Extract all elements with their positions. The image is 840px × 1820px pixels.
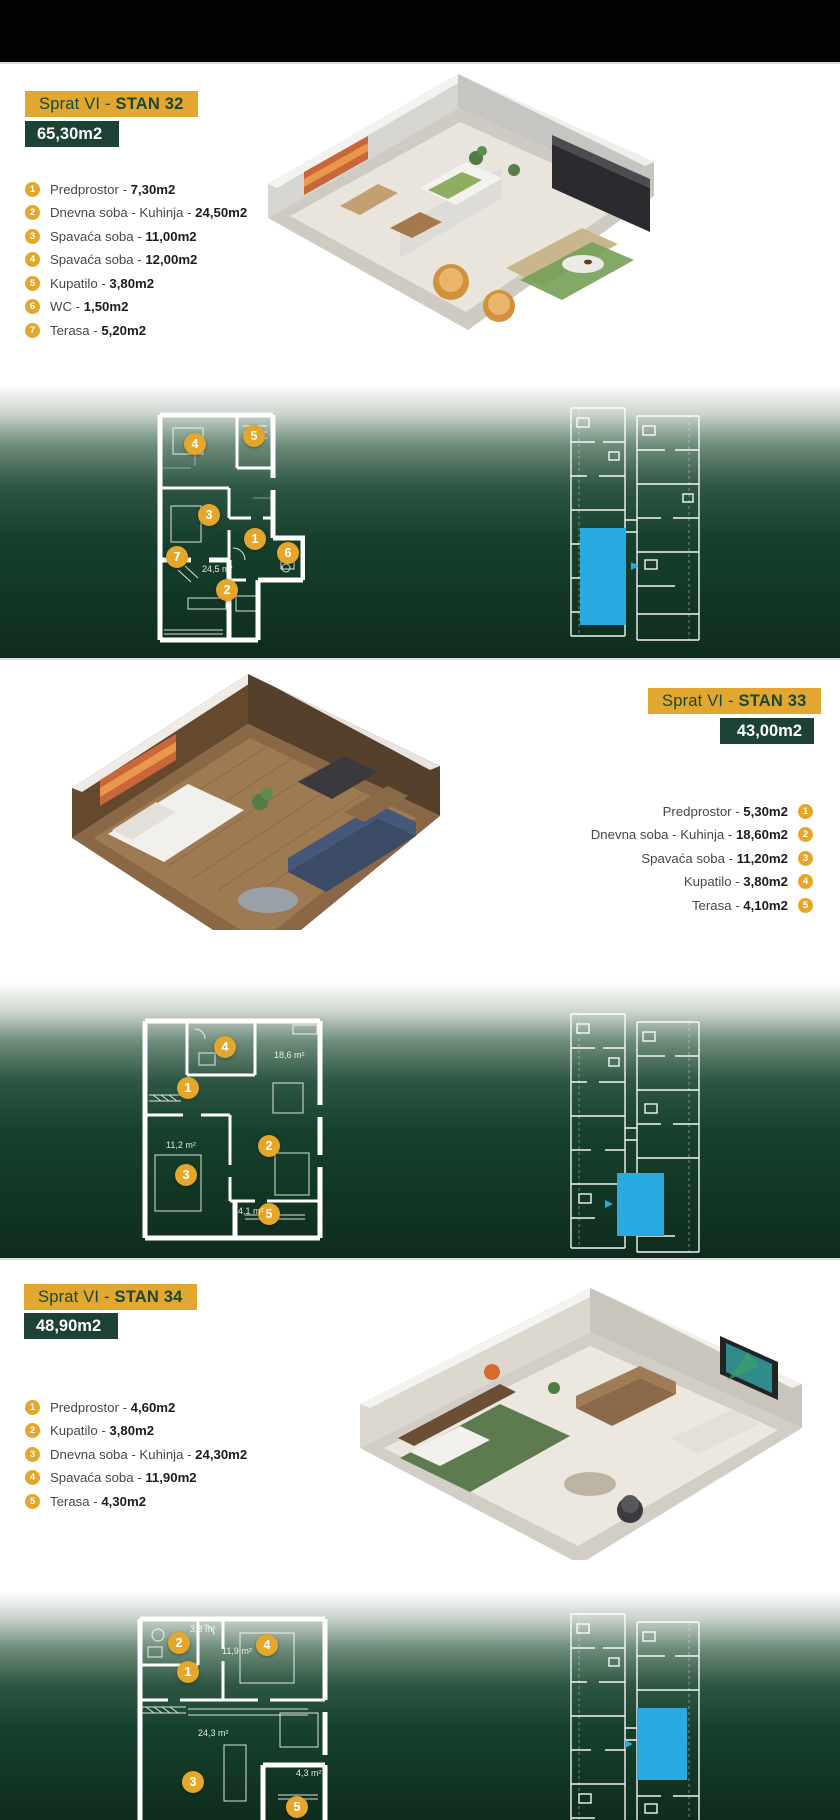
room-number-badge: 3 [25, 229, 40, 244]
separator-line [0, 62, 840, 64]
room-row: 6WC - 1,50m2 [25, 299, 247, 315]
room-area: 24,50m2 [195, 205, 247, 220]
room-number-badge: 2 [25, 1423, 40, 1438]
room-area: 4,60m2 [131, 1400, 176, 1415]
room-number-badge: 4 [25, 252, 40, 267]
room-area: 4,10m2 [743, 898, 788, 913]
plan-area-label: 4,1 m² [238, 1206, 264, 1216]
room-label: Dnevna soba - Kuhinja - [591, 827, 736, 842]
top-black-bar [0, 0, 840, 62]
room-area: 4,30m2 [101, 1494, 146, 1509]
apartment-32-3d-render [252, 66, 664, 334]
section2-plan-band: 4 1 2 3 5 18,6 m² 11,2 m² 4,1 m² [0, 930, 840, 1258]
room-row: 3Dnevna soba - Kuhinja - 24,30m2 [25, 1446, 247, 1462]
room-area: 3,80m2 [743, 874, 788, 889]
room-row: 3Spavaća soba - 11,00m2 [25, 228, 247, 244]
floor-label: Sprat VI - [662, 692, 738, 710]
room-row: 1Predprostor - 4,60m2 [25, 1399, 247, 1415]
plan-marker: 5 [243, 425, 265, 447]
building-keyplan-33 [565, 1008, 705, 1258]
room-label: WC - [50, 299, 84, 314]
room-area: 7,30m2 [131, 182, 176, 197]
separator-line [0, 1258, 840, 1260]
room-label: Spavaća soba - [641, 851, 736, 866]
room-number-badge: 4 [25, 1470, 40, 1485]
plan-marker: 4 [184, 433, 206, 455]
room-label: Predprostor - [663, 804, 744, 819]
section1-title-tag: Sprat VI - STAN 32 [25, 91, 198, 117]
plan-marker: 1 [177, 1661, 199, 1683]
room-row: 2Dnevna soba - Kuhinja - 24,50m2 [25, 205, 247, 221]
plan-area-label: 3,8 m² [190, 1624, 216, 1634]
room-row: Predprostor - 5,30m21 [663, 803, 813, 819]
room-row: Spavaća soba - 11,20m23 [641, 850, 813, 866]
unit-arrow-icon [625, 1740, 633, 1748]
room-label: Dnevna soba - Kuhinja - [50, 1447, 195, 1462]
plan-marker: 4 [256, 1634, 278, 1656]
plan-marker: 3 [198, 504, 220, 526]
room-area: 11,00m2 [145, 229, 196, 244]
room-number-badge: 7 [25, 323, 40, 338]
room-area: 12,00m2 [145, 252, 197, 267]
floor-label: Sprat VI - [38, 1288, 114, 1306]
room-area: 24,30m2 [195, 1447, 247, 1462]
highlighted-unit-34 [637, 1708, 687, 1780]
brochure-page: Sprat VI - STAN 32 65,30m2 1Predprostor … [0, 0, 840, 1820]
room-number-badge: 5 [25, 276, 40, 291]
plan-area-label: 11,2 m² [166, 1140, 196, 1150]
plan-marker: 5 [286, 1796, 308, 1818]
section3-plan-band: 2 4 1 3 5 3,8 m² 11,9 m² 24,3 m² 4,3 m² [0, 1560, 840, 1820]
room-row: Dnevna soba - Kuhinja - 18,60m22 [591, 827, 813, 843]
plan-marker: 7 [166, 546, 188, 568]
room-area: 5,20m2 [101, 323, 146, 338]
separator-line [0, 658, 840, 660]
room-row: Terasa - 4,10m25 [692, 897, 813, 913]
room-row: 5Kupatilo - 3,80m2 [25, 275, 247, 291]
room-number-badge: 6 [25, 299, 40, 314]
plan-marker: 2 [168, 1632, 190, 1654]
room-number-badge: 1 [798, 804, 813, 819]
section3-room-list: 1Predprostor - 4,60m2 2Kupatilo - 3,80m2… [25, 1399, 247, 1517]
room-number-badge: 3 [798, 851, 813, 866]
plan-marker: 2 [258, 1135, 280, 1157]
plan-marker: 3 [182, 1771, 204, 1793]
plan-area-label: 24,3 m² [198, 1728, 229, 1738]
room-label: Spavaća soba - [50, 1470, 145, 1485]
room-row: Kupatilo - 3,80m24 [684, 874, 813, 890]
room-label: Kupatilo - [50, 276, 109, 291]
section1-plan-band: 4 5 3 1 7 6 2 24,5 m² [0, 340, 840, 658]
section2-title-tag: Sprat VI - STAN 33 [648, 688, 821, 714]
plan-marker: 3 [175, 1164, 197, 1186]
room-label: Spavaća soba - [50, 229, 145, 244]
room-area: 5,30m2 [743, 804, 788, 819]
plan-marker: 4 [214, 1036, 236, 1058]
highlighted-unit-33 [617, 1173, 664, 1236]
section2-area-tag: 43,00m2 [720, 718, 814, 744]
unit-name: STAN 32 [115, 95, 183, 113]
room-row: 4Spavaća soba - 12,00m2 [25, 252, 247, 268]
unit-arrow-icon [605, 1200, 613, 1208]
room-row: 1Predprostor - 7,30m2 [25, 181, 247, 197]
plan-marker: 1 [177, 1077, 199, 1099]
room-number-badge: 3 [25, 1447, 40, 1462]
plan-marker: 6 [277, 542, 299, 564]
plan-marker: 2 [216, 579, 238, 601]
room-area: 18,60m2 [736, 827, 788, 842]
room-row: 7Terasa - 5,20m2 [25, 323, 247, 339]
highlighted-unit-32 [580, 528, 626, 625]
room-label: Terasa - [50, 323, 101, 338]
unit-name: STAN 33 [738, 692, 806, 710]
room-label: Kupatilo - [50, 1423, 109, 1438]
apartment-34-floorplan [128, 1605, 338, 1820]
building-keyplan-32 [565, 402, 705, 642]
room-area: 11,20m2 [737, 851, 788, 866]
unit-arrow-icon [631, 562, 639, 570]
room-label: Spavaća soba - [50, 252, 145, 267]
apartment-32-floorplan [133, 348, 305, 654]
section2-room-list: Predprostor - 5,30m21 Dnevna soba - Kuhi… [591, 803, 813, 921]
room-label: Terasa - [692, 898, 743, 913]
room-area: 1,50m2 [84, 299, 129, 314]
plan-area-label: 11,9 m² [222, 1646, 252, 1656]
building-keyplan-34 [565, 1608, 705, 1820]
room-area: 11,90m2 [145, 1470, 196, 1485]
room-label: Dnevna soba - Kuhinja - [50, 205, 195, 220]
apartment-34-3d-render [340, 1288, 820, 1570]
room-label: Predprostor - [50, 1400, 131, 1415]
room-row: 2Kupatilo - 3,80m2 [25, 1423, 247, 1439]
room-number-badge: 5 [798, 898, 813, 913]
room-number-badge: 1 [25, 182, 40, 197]
room-number-badge: 5 [25, 1494, 40, 1509]
section1-area-tag: 65,30m2 [25, 121, 119, 147]
room-number-badge: 2 [798, 827, 813, 842]
room-row: 5Terasa - 4,30m2 [25, 1493, 247, 1509]
room-number-badge: 1 [25, 1400, 40, 1415]
plan-marker: 1 [244, 528, 266, 550]
section3-area-tag: 48,90m2 [24, 1313, 118, 1339]
room-label: Terasa - [50, 1494, 101, 1509]
room-area: 3,80m2 [109, 1423, 154, 1438]
plan-area-label: 24,5 m² [202, 564, 233, 574]
room-label: Predprostor - [50, 182, 131, 197]
plan-area-label: 4,3 m² [296, 1768, 322, 1778]
room-row: 4Spavaća soba - 11,90m2 [25, 1470, 247, 1486]
room-number-badge: 4 [798, 874, 813, 889]
section3-title-tag: Sprat VI - STAN 34 [24, 1284, 197, 1310]
plan-area-label: 18,6 m² [274, 1050, 305, 1060]
room-number-badge: 2 [25, 205, 40, 220]
section1-room-list: 1Predprostor - 7,30m2 2Dnevna soba - Kuh… [25, 181, 247, 346]
room-area: 3,80m2 [109, 276, 154, 291]
room-label: Kupatilo - [684, 874, 743, 889]
floor-label: Sprat VI - [39, 95, 115, 113]
unit-name: STAN 34 [114, 1288, 182, 1306]
